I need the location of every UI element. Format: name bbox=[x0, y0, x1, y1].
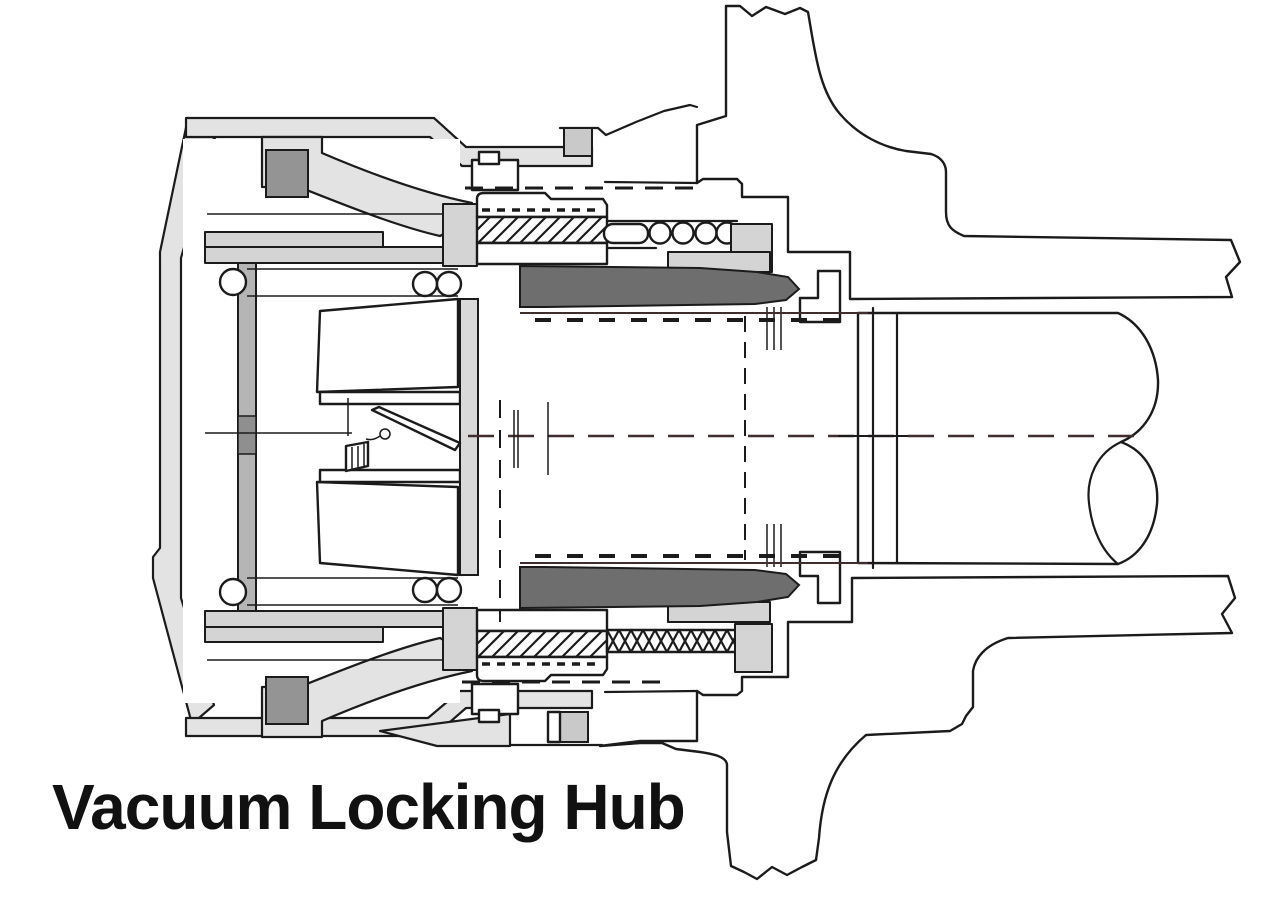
spring-seat-top bbox=[205, 232, 383, 247]
spring-seat-bottom bbox=[205, 627, 383, 642]
seal-cartridge-bottom bbox=[477, 657, 607, 681]
coil-spring-top bbox=[604, 221, 772, 272]
seal-cartridge-top bbox=[477, 193, 607, 217]
axle-shaft bbox=[858, 308, 1158, 568]
spline-hatching-bottom bbox=[477, 631, 607, 657]
spring-stop-bottom bbox=[735, 624, 772, 672]
duct-elbow-bottom bbox=[266, 677, 308, 724]
washer-block-bottom bbox=[560, 712, 588, 742]
collar-bottom bbox=[520, 567, 799, 608]
seal-seat-bottom bbox=[443, 608, 477, 670]
locknut-face-line bbox=[605, 182, 697, 183]
axle-body bbox=[858, 313, 1158, 564]
spring-rail-top bbox=[205, 247, 456, 263]
lining-joint bbox=[238, 416, 256, 454]
seal-seat-top bbox=[443, 204, 477, 266]
bracket-bottom bbox=[800, 552, 840, 603]
locknut-face-line-lower bbox=[605, 691, 697, 692]
duct-elbow-top bbox=[266, 150, 308, 197]
spline-root-bottom bbox=[477, 610, 607, 631]
retainer-tab-top bbox=[479, 152, 499, 164]
spline-hatching-top bbox=[477, 217, 607, 243]
spline-root-top bbox=[477, 243, 607, 264]
spring-rail-bottom bbox=[205, 611, 456, 627]
bottom-tab bbox=[548, 712, 560, 742]
bracket-top bbox=[800, 271, 840, 322]
washer-block-top bbox=[564, 128, 592, 156]
collar-top bbox=[520, 266, 799, 307]
vacuum-locking-hub-diagram: Vacuum Locking Hub bbox=[0, 0, 1271, 915]
coil-spring-bottom bbox=[607, 602, 772, 672]
diagram-title: Vacuum Locking Hub bbox=[52, 770, 685, 844]
retainer-tab-bottom bbox=[479, 710, 499, 722]
upper-flange bbox=[697, 6, 1240, 299]
